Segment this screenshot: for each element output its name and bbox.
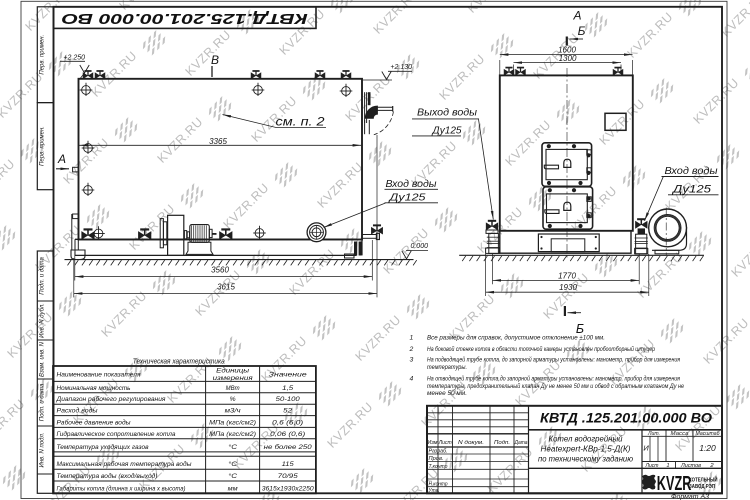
svg-text:менее 50 мм.: менее 50 мм. — [427, 390, 467, 397]
svg-text:3560: 3560 — [211, 266, 229, 275]
svg-text:Утв.: Утв. — [428, 488, 440, 494]
svg-text:+2.130: +2.130 — [390, 64, 412, 71]
svg-text:На подводящей трубе котла, до: На подводящей трубе котла, до запорной а… — [427, 356, 680, 364]
svg-text:3615: 3615 — [217, 283, 235, 292]
svg-text:°С: °С — [228, 472, 237, 480]
svg-text:4: 4 — [410, 376, 414, 383]
svg-text:А: А — [57, 152, 66, 166]
svg-text:Подп. и дата: Подп. и дата — [40, 383, 46, 421]
svg-text:0,06 (0,6): 0,06 (0,6) — [270, 431, 305, 438]
svg-text:115: 115 — [282, 461, 294, 468]
svg-text:измерения: измерения — [213, 375, 254, 382]
svg-text:ЗАВОД РЭП: ЗАВОД РЭП — [689, 484, 715, 490]
svg-text:Ду125: Ду125 — [671, 183, 712, 195]
svg-text:Значение: Значение — [269, 371, 307, 378]
svg-text:3365: 3365 — [209, 137, 227, 146]
svg-text:Котел водогрейный: Котел водогрейный — [549, 435, 624, 444]
svg-text:+2.250: +2.250 — [63, 55, 85, 62]
svg-text:Наименование показателя: Наименование показателя — [57, 371, 141, 378]
svg-text:52: 52 — [283, 408, 292, 415]
svg-text:КВТД .125.201.00.000 ВО: КВТД .125.201.00.000 ВО — [540, 410, 713, 425]
svg-text:°С: °С — [228, 443, 237, 451]
svg-text:Взам. инв. N: Взам. инв. N — [40, 341, 46, 377]
svg-text:МВт: МВт — [226, 385, 240, 392]
svg-text:Диапазон рабочего регулировани: Диапазон рабочего регулирования — [56, 395, 166, 403]
svg-text:м3/ч: м3/ч — [225, 408, 242, 415]
svg-text:Разраб.: Разраб. — [429, 449, 448, 455]
svg-text:Листов: Листов — [680, 463, 701, 469]
svg-text:Масса: Масса — [671, 431, 689, 437]
svg-text:А: А — [572, 9, 581, 23]
svg-text:%: % — [230, 396, 236, 403]
svg-text:Пров.: Пров. — [429, 456, 444, 462]
svg-text:КВТД.125.201.00.000 ВО: КВТД.125.201.00.000 ВО — [61, 10, 308, 26]
svg-text:Изм: Изм — [428, 440, 438, 446]
svg-text:Перв. примен.: Перв. примен. — [40, 126, 46, 166]
svg-text:В: В — [211, 53, 219, 67]
svg-text:МПа (кгс/см2): МПа (кгс/см2) — [209, 431, 256, 438]
svg-text:3615х1930х2250: 3615х1930х2250 — [262, 485, 314, 492]
svg-text:3: 3 — [410, 357, 414, 364]
svg-text:Максимальная рабочая температу: Максимальная рабочая температура воды — [57, 460, 192, 468]
svg-text:Лит.: Лит. — [647, 431, 660, 437]
svg-text:1,5: 1,5 — [282, 385, 293, 392]
svg-text:Расход воды: Расход воды — [57, 407, 98, 415]
svg-text:Т.контр: Т.контр — [429, 464, 449, 470]
svg-text:Формат А3: Формат А3 — [671, 495, 710, 500]
svg-text:Ду125: Ду125 — [388, 192, 425, 204]
svg-text:1930: 1930 — [559, 283, 577, 292]
svg-text:Вход воды: Вход воды — [386, 178, 437, 190]
svg-text:Температура воды (вход/выход): Температура воды (вход/выход) — [57, 472, 158, 480]
svg-text:Температура уходящих газов: Температура уходящих газов — [57, 443, 149, 451]
svg-text:Подп.: Подп. — [494, 440, 510, 446]
svg-text:1: 1 — [666, 463, 669, 469]
svg-text:Ду125: Ду125 — [432, 125, 462, 137]
svg-text:Лист: Лист — [645, 463, 659, 469]
svg-text:температуры.: температуры. — [427, 364, 467, 371]
svg-text:Вход воды: Вход воды — [665, 165, 718, 177]
svg-text:мм: мм — [228, 485, 238, 492]
svg-text:см. п. 2: см. п. 2 — [276, 117, 326, 129]
svg-text:Подп. и дата: Подп. и дата — [40, 257, 46, 295]
svg-text:температуры, предохранительный: температуры, предохранительный клапан Ду… — [427, 382, 684, 390]
svg-text:МПа (кгс/см2): МПа (кгс/см2) — [209, 419, 256, 426]
svg-text:°С: °С — [228, 460, 237, 468]
svg-text:Инв. N подл.: Инв. N подл. — [40, 432, 46, 467]
svg-text:KVZR: KVZR — [657, 472, 692, 495]
svg-text:70/95: 70/95 — [278, 473, 298, 480]
svg-text:Гидравлическое сопротивление к: Гидравлическое сопротивление котла — [57, 430, 176, 438]
svg-text:не более 250: не более 250 — [264, 443, 312, 451]
svg-text:1300: 1300 — [559, 54, 577, 63]
svg-text:Дата: Дата — [514, 440, 529, 446]
svg-text:И: И — [643, 444, 649, 453]
svg-text:0,6 (6,0): 0,6 (6,0) — [272, 419, 303, 426]
svg-text:Номинальная мощность: Номинальная мощность — [57, 385, 131, 392]
svg-text:На боковой стенке котла в обла: На боковой стенке котла в области топочн… — [427, 345, 655, 353]
svg-text:Габариты котла (длинна х шир: Габариты котла (длинна х ширина х высота… — [57, 484, 186, 492]
svg-text:КОТЕЛЬНЫЙ: КОТЕЛЬНЫЙ — [689, 475, 718, 483]
svg-text:Техническая характеристика: Техническая характеристика — [133, 357, 225, 366]
svg-text:50-100: 50-100 — [276, 396, 300, 403]
svg-text:по техническому заданию: по техническому заданию — [538, 455, 633, 464]
svg-text:Heatexpert-КВр-1,5-Д(К): Heatexpert-КВр-1,5-Д(К) — [541, 445, 631, 454]
svg-text:Единицы: Единицы — [216, 367, 249, 375]
svg-text:1: 1 — [410, 335, 414, 342]
svg-text:Н.контр: Н.контр — [429, 481, 449, 487]
svg-text:Масштаб: Масштаб — [696, 431, 721, 437]
svg-text:1770: 1770 — [558, 271, 576, 280]
svg-text:Выход воды: Выход воды — [417, 107, 477, 119]
svg-text:Перв. примен.: Перв. примен. — [40, 35, 46, 75]
svg-text:0.000: 0.000 — [410, 243, 428, 250]
svg-text:На отводящей трубе котла,до за: На отводящей трубе котла,до запорной арм… — [427, 375, 680, 383]
svg-text:2: 2 — [409, 346, 414, 353]
svg-text:Лист: Лист — [438, 440, 452, 446]
svg-text:Рабочее давление воды: Рабочее давление воды — [57, 418, 131, 426]
svg-text:Инв. N дубл.: Инв. N дубл. — [40, 303, 46, 338]
svg-text:Б: Б — [578, 24, 586, 38]
svg-text:N докум.: N докум. — [458, 440, 484, 446]
svg-text:Все размеры для справок, допус: Все размеры для справок, допустимое откл… — [427, 334, 605, 342]
svg-text:1:20: 1:20 — [699, 443, 716, 453]
